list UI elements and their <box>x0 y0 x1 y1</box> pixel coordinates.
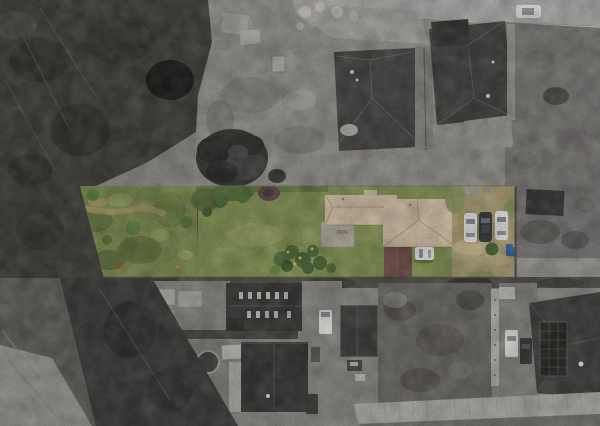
white-fence <box>491 289 499 386</box>
orange-object <box>175 265 179 269</box>
patio <box>321 222 354 247</box>
south-scrub-yard <box>378 283 492 403</box>
car-on-street <box>516 5 541 18</box>
between-houses-yard <box>415 46 433 150</box>
roof-vent <box>350 70 354 74</box>
shed-roof <box>525 189 564 216</box>
solar-panels <box>540 322 567 376</box>
highlighted-parcel <box>77 185 518 279</box>
white-van <box>319 310 332 334</box>
backyard-spa <box>340 124 358 136</box>
open-field <box>505 22 600 186</box>
rear-lane <box>516 258 600 279</box>
small-shed <box>499 287 515 299</box>
north-house-left <box>334 48 419 151</box>
round-bush <box>486 243 499 256</box>
parked-cars-row <box>464 211 508 242</box>
driveway-car-white <box>505 330 518 357</box>
parked-car-white-1 <box>464 213 479 242</box>
small-tree-green <box>212 192 228 208</box>
driveway-car-dark <box>520 338 532 364</box>
small-trailer <box>311 347 320 362</box>
southeast-driveway <box>499 283 537 403</box>
trailer <box>272 56 285 72</box>
car-by-garage <box>414 247 434 264</box>
red-object <box>117 264 121 268</box>
solar-house <box>529 292 600 400</box>
aerial-photo <box>0 0 600 426</box>
attached-garage-roof <box>431 19 470 47</box>
bin-blue <box>506 244 513 256</box>
aerial-photo-canvas <box>0 0 600 426</box>
chimney <box>364 190 377 196</box>
east-neighbor-yard <box>516 186 600 283</box>
warehouse-north <box>226 283 302 331</box>
parked-car-dark <box>479 212 492 242</box>
yellow-flowers <box>287 251 290 254</box>
paved-backyard <box>464 115 513 150</box>
parked-car-white-2 <box>495 211 508 240</box>
warehouse-south <box>241 342 308 412</box>
